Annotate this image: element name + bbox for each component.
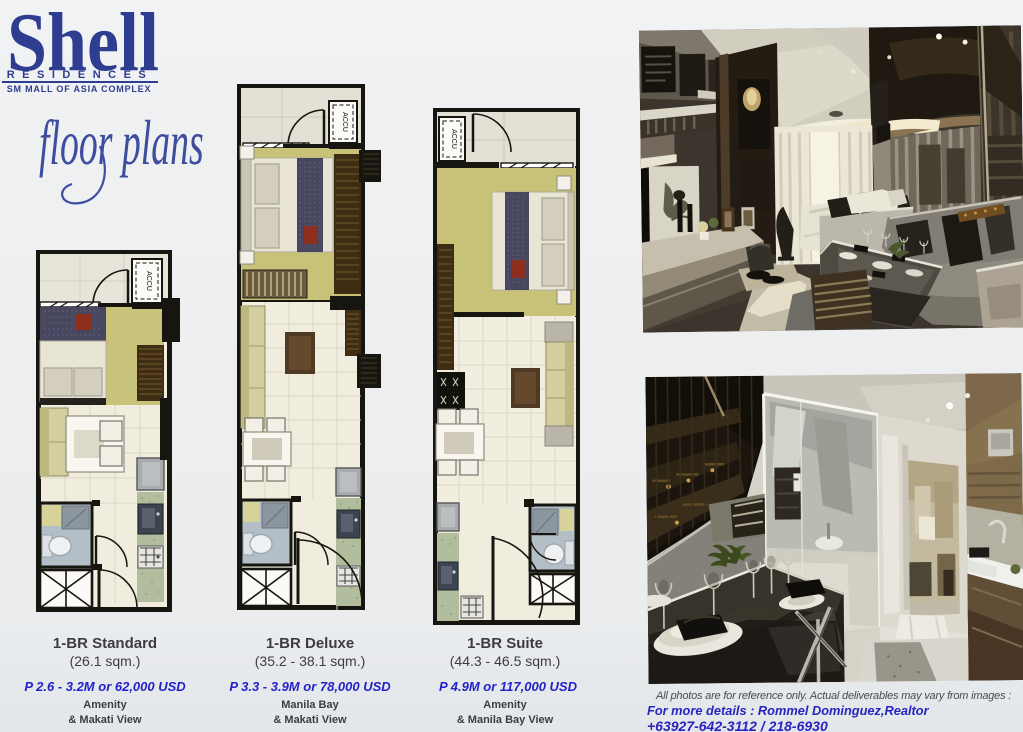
- svg-text:SM MALL OF ASIA COMPLEX: SM MALL OF ASIA COMPLEX: [7, 84, 152, 94]
- svg-text:ACCU: ACCU: [341, 112, 348, 132]
- svg-text:ACCU: ACCU: [145, 271, 152, 291]
- svg-text:floor plans: floor plans: [39, 108, 204, 179]
- svg-text:ACCU: ACCU: [450, 129, 457, 149]
- svg-text:RESIDENCES: RESIDENCES: [7, 69, 154, 81]
